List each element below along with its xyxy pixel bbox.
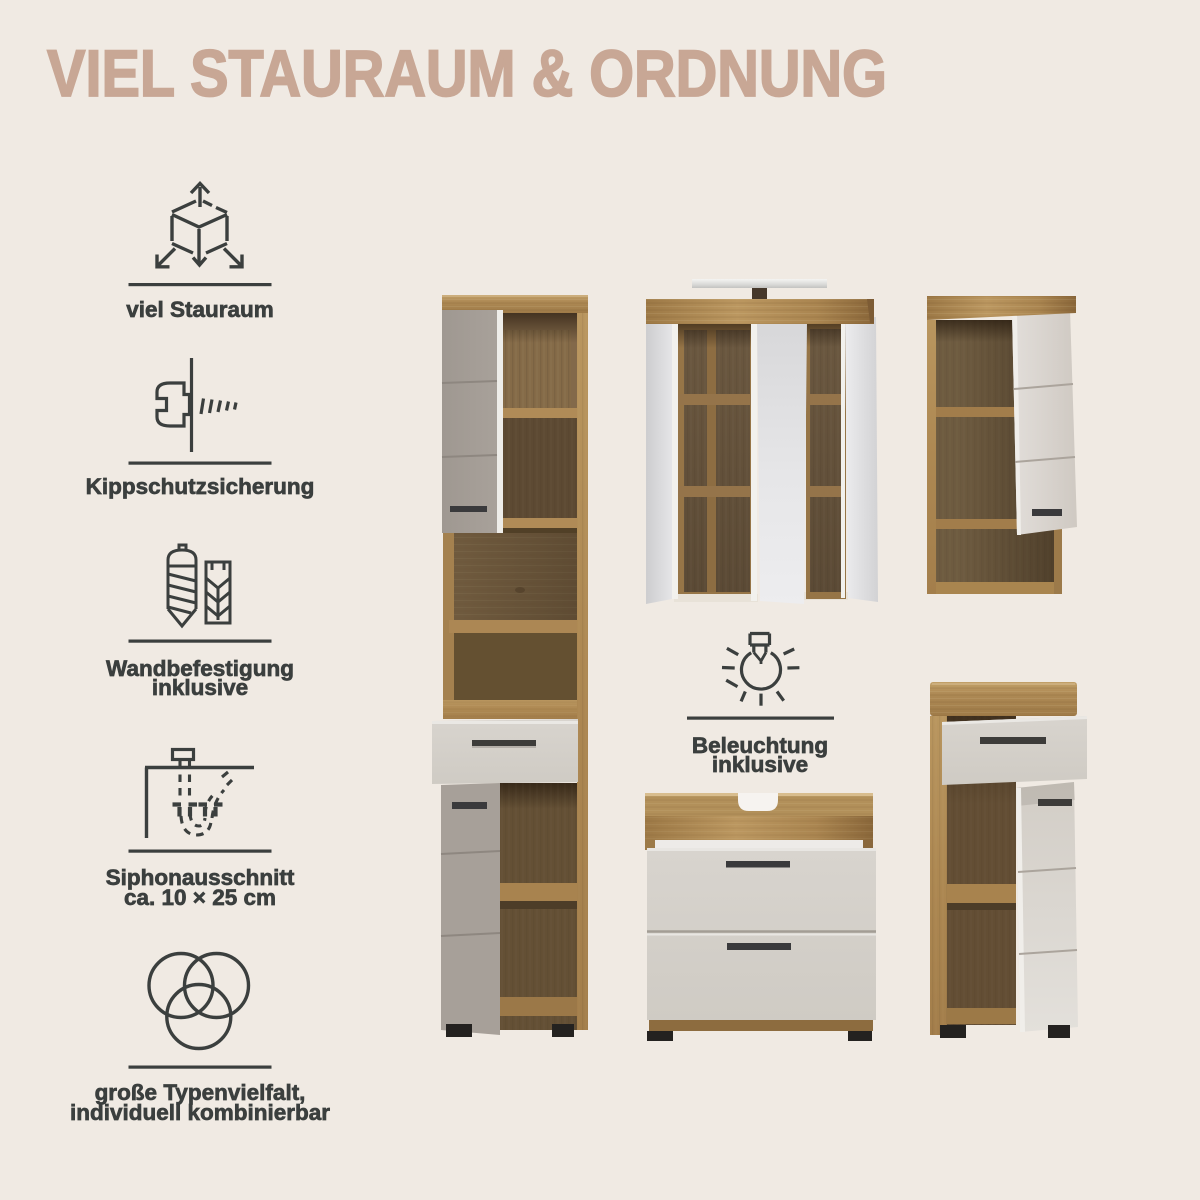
svg-text:VIEL STAURAUM & ORDNUNG: VIEL STAURAUM & ORDNUNG bbox=[47, 36, 887, 110]
svg-text:Kippschutzsicherung: Kippschutzsicherung bbox=[86, 474, 315, 499]
svg-text:viel Stauraum: viel Stauraum bbox=[126, 297, 274, 322]
svg-text:inklusive: inklusive bbox=[712, 752, 808, 777]
svg-text:ca. 10 × 25 cm: ca. 10 × 25 cm bbox=[124, 885, 276, 910]
svg-text:inklusive: inklusive bbox=[152, 675, 248, 700]
svg-text:individuell kombinierbar: individuell kombinierbar bbox=[70, 1100, 330, 1125]
